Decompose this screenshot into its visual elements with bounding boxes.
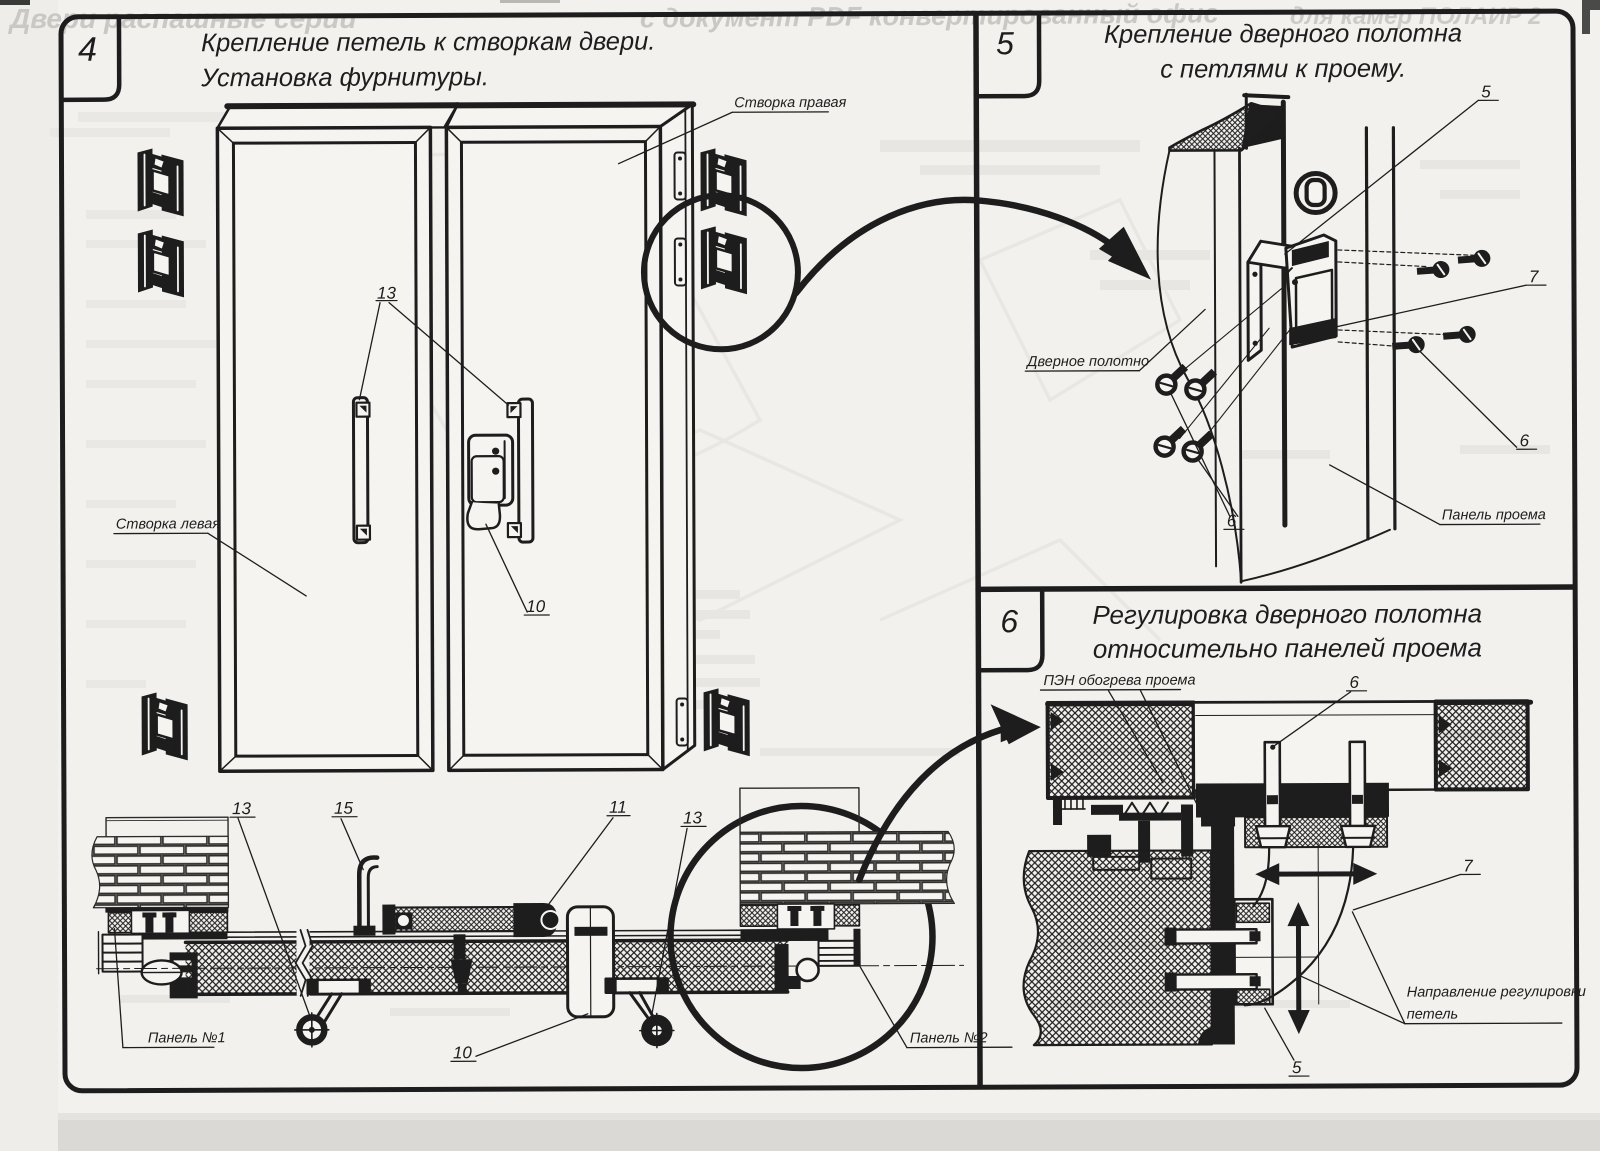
svg-text:Панель №2: Панель №2 xyxy=(910,1030,988,1046)
svg-text:петель: петель xyxy=(1407,1006,1458,1022)
svg-text:11: 11 xyxy=(609,798,627,817)
svg-text:7: 7 xyxy=(1529,267,1539,286)
svg-text:15: 15 xyxy=(334,799,354,818)
svg-text:Панель проема: Панель проема xyxy=(1442,507,1546,523)
svg-text:Крепление дверного полотна: Крепление дверного полотна xyxy=(1104,19,1462,48)
svg-text:6: 6 xyxy=(1349,673,1359,692)
svg-text:7: 7 xyxy=(1463,856,1473,875)
svg-text:13: 13 xyxy=(683,808,703,827)
svg-text:5: 5 xyxy=(996,25,1014,61)
svg-text:10: 10 xyxy=(526,597,546,616)
svg-text:Регулировка дверного полотна: Регулировка дверного полотна xyxy=(1092,598,1482,629)
svg-text:5: 5 xyxy=(1481,82,1491,101)
svg-text:Установка фурнитуры.: Установка фурнитуры. xyxy=(200,63,489,92)
svg-text:Направление регулировки: Направление регулировки xyxy=(1407,984,1586,1001)
svg-text:Панель №1: Панель №1 xyxy=(148,1030,226,1046)
svg-text:относительно панелей проема: относительно панелей проема xyxy=(1093,632,1482,663)
svg-text:Створка левая: Створка левая xyxy=(116,516,220,532)
svg-text:13: 13 xyxy=(232,799,252,818)
svg-text:Створка правая: Створка правая xyxy=(734,95,846,111)
svg-text:Крепление петель к створкам дв: Крепление петель к створкам двери. xyxy=(201,28,655,58)
svg-text:10: 10 xyxy=(453,1043,473,1062)
svg-text:с петлями к проему.: с петлями к проему. xyxy=(1160,55,1406,84)
svg-text:4: 4 xyxy=(78,31,97,69)
svg-text:Дверное полотно: Дверное полотно xyxy=(1025,354,1149,370)
svg-text:ПЭН обогрева проема: ПЭН обогрева проема xyxy=(1043,672,1195,689)
svg-text:13: 13 xyxy=(377,284,397,303)
svg-text:5: 5 xyxy=(1292,1058,1302,1077)
svg-text:6: 6 xyxy=(1000,603,1018,639)
svg-text:6: 6 xyxy=(1520,431,1530,450)
